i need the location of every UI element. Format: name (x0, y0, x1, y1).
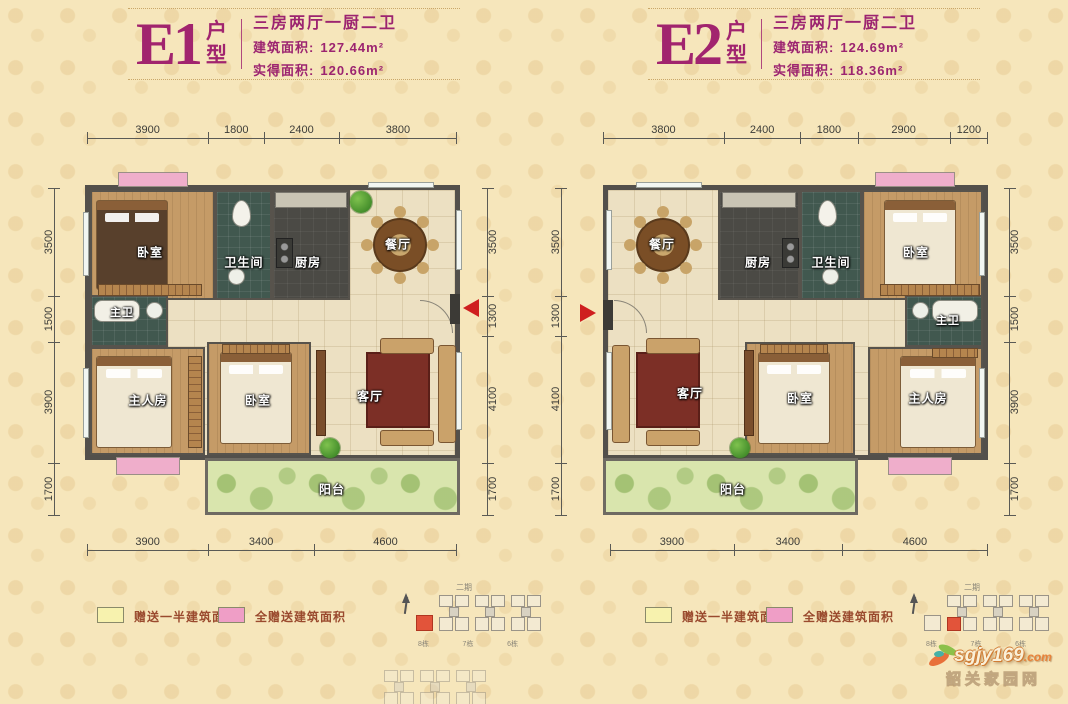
e1-build-area-row: 建筑面积:127.44m² (253, 37, 397, 56)
e2-kitchen-counter-icon (722, 192, 796, 208)
dim-segment: 3800 (603, 122, 724, 146)
dim-value: 4100 (550, 387, 562, 411)
e1-master-sink-icon (146, 302, 163, 319)
site-keyplan-faded (368, 660, 488, 704)
e1-tv-bench-icon (316, 350, 326, 436)
e1-label-dining: 餐厅 (385, 236, 411, 253)
e1-net-area-label: 实得面积: (253, 63, 314, 78)
e2-legend-half-swatch (645, 607, 672, 623)
e2-keyplan-phase: 二期 (964, 582, 980, 593)
e1-build-area-value: 127.44m² (320, 40, 384, 55)
e1-dims-right: 3500 1300 4100 1700 (480, 188, 506, 515)
keyplan-building (475, 595, 505, 635)
e1-bay-window-bottom (116, 457, 180, 475)
e1-dims-left: 3500 1500 3900 1700 (36, 188, 62, 515)
e1-sofa-bottom-icon (380, 430, 434, 446)
dim-segment: 1700 (36, 463, 62, 515)
e1-net-area-row: 实得面积:120.66m² (253, 60, 397, 79)
dim-value: 1500 (43, 307, 55, 331)
e2-master-sink-icon (912, 302, 929, 319)
dim-value: 3900 (135, 124, 159, 136)
e2-label-balcony: 阳台 (720, 481, 746, 498)
dim-segment: 3400 (208, 534, 314, 558)
dim-value: 1800 (224, 124, 248, 136)
e1-label-master-bath: 主卫 (110, 304, 134, 320)
e1-legend-half-swatch (97, 607, 124, 623)
e1-sofa-main-icon (438, 345, 456, 443)
e2-label-bedroom: 卧室 (903, 244, 929, 261)
dim-segment: 1800 (208, 122, 264, 146)
e1-label-living: 客厅 (357, 388, 383, 405)
e2-toilet-icon (818, 200, 837, 227)
dim-value: 1700 (43, 477, 55, 501)
dim-value: 3400 (249, 536, 273, 548)
dim-segment: 3400 (734, 534, 842, 558)
dim-value: 3500 (1009, 230, 1021, 254)
e1-bay-window-top (118, 172, 188, 187)
building-label: 8栋 (418, 639, 429, 649)
dim-value: 1700 (550, 477, 562, 501)
e1-keyplan-phase: 二期 (456, 582, 472, 593)
e2-header: E2 户型 三房两厅一厨二卫 建筑面积:124.69m² 实得面积:118.36… (648, 8, 980, 80)
e1-unit-type-suffix: 户型 (206, 20, 232, 68)
e2-unit-code: E2 (656, 16, 720, 73)
watermark-url: sgjy169.com (954, 645, 1068, 667)
e1-dims-top: 3900 1800 2400 3800 (87, 122, 457, 146)
e2-legend-full-label: 全赠送建筑面积 (803, 608, 894, 625)
e1-entry-arrow-icon (463, 299, 479, 317)
dim-value: 3500 (550, 230, 562, 254)
dim-segment: 1700 (480, 463, 506, 515)
e2-dims-bottom: 3900 3400 4600 (610, 534, 988, 558)
dim-segment: 3900 (87, 122, 208, 146)
e1-label-bedroom2: 卧室 (245, 392, 271, 409)
e2-net-area-row: 实得面积:118.36m² (773, 60, 917, 79)
e2-window-bedroom (979, 212, 985, 276)
dim-segment: 3900 (36, 342, 62, 462)
e2-dims-left: 3500 1300 4100 1700 (543, 188, 569, 515)
dim-value: 4600 (903, 536, 927, 548)
e1-label-master: 主人房 (128, 392, 167, 409)
building-label: 6栋 (507, 639, 518, 649)
keyplan-unit (924, 615, 941, 631)
e1-legend-full-label: 全赠送建筑面积 (255, 608, 346, 625)
keyplan-building (384, 670, 414, 704)
e2-dims-right: 3500 1500 3900 1700 (1002, 188, 1028, 515)
e2-label-bathroom: 卫生间 (811, 254, 850, 271)
floorplan-poster: E1 户型 三房两厅一厨二卫 建筑面积:127.44m² 实得面积:120.66… (0, 0, 1068, 704)
keyplan-building (420, 670, 450, 704)
dim-value: 1300 (487, 304, 499, 328)
e2-header-divider (761, 19, 762, 69)
e2-sofa-bottom-icon (646, 430, 700, 446)
e2-wardrobe-bedroom-icon (880, 284, 980, 296)
e2-window-dining (636, 182, 702, 188)
e2-balcony-plant-icon (730, 438, 750, 458)
dim-segment: 4600 (314, 534, 457, 558)
e2-net-area-value: 118.36m² (840, 63, 903, 78)
e2-layout-desc: 三房两厅一厨二卫 (773, 9, 917, 33)
e2-window-dining-west (606, 210, 612, 270)
e2-label-dining: 餐厅 (649, 236, 675, 253)
e2-label-bedroom2: 卧室 (787, 390, 813, 407)
dim-segment: 4600 (842, 534, 988, 558)
e2-keyplan-highlight-unit (947, 617, 961, 631)
dim-value: 2400 (289, 124, 313, 136)
e2-bay-window-bottom (888, 457, 952, 475)
e1-label-bedroom: 卧室 (137, 244, 163, 261)
watermark-site-name: 韶关家园网 (946, 668, 1068, 689)
e2-keyplan-buildings (924, 595, 1049, 635)
dim-value: 3500 (43, 230, 55, 254)
e1-header-info: 三房两厅一厨二卫 建筑面积:127.44m² 实得面积:120.66m² (253, 9, 397, 79)
dim-value: 1500 (1009, 307, 1021, 331)
e1-dims-bottom: 3900 3400 4600 (87, 534, 457, 558)
e2-dims-top: 3800 2400 1800 2900 1200 (603, 122, 988, 146)
e1-header-divider (241, 19, 242, 69)
e2-header-info: 三房两厅一厨二卫 建筑面积:124.69m² 实得面积:118.36m² (773, 9, 917, 79)
dim-segment: 3500 (1002, 188, 1028, 296)
e1-sofa-top-icon (380, 338, 434, 354)
e2-build-area-label: 建筑面积: (773, 40, 834, 55)
e2-label-living: 客厅 (677, 385, 703, 402)
dim-segment: 2400 (264, 122, 339, 146)
e1-unit-code: E1 (136, 16, 200, 73)
e1-entry-door (450, 294, 460, 324)
e2-build-area-value: 124.69m² (840, 40, 904, 55)
e2-sofa-top-icon (646, 338, 700, 354)
dim-value: 2900 (891, 124, 915, 136)
dim-value: 1700 (487, 477, 499, 501)
dim-value: 1700 (1009, 477, 1021, 501)
e1-header: E1 户型 三房两厅一厨二卫 建筑面积:127.44m² 实得面积:120.66… (128, 8, 460, 80)
e2-legend-full-swatch (766, 607, 793, 623)
e1-balcony-plant-icon (320, 438, 340, 458)
e2-net-area-label: 实得面积: (773, 63, 834, 78)
dim-segment: 1800 (800, 122, 857, 146)
e2-sofa-main-icon (612, 345, 630, 443)
e1-legend-full-swatch (218, 607, 245, 623)
dim-segment: 1200 (950, 122, 988, 146)
e1-build-area-label: 建筑面积: (253, 40, 314, 55)
dim-value: 3500 (487, 230, 499, 254)
e2-label-master: 主人房 (908, 390, 947, 407)
e2-sink-icon (822, 268, 839, 285)
e1-layout-desc: 三房两厅一厨二卫 (253, 9, 397, 33)
keyplan-building (456, 670, 486, 704)
e1-sink-icon (228, 268, 245, 285)
dim-value: 1200 (957, 124, 981, 136)
dim-value: 1300 (550, 304, 562, 328)
e1-window-master (83, 368, 89, 438)
e1-stove-icon (276, 238, 293, 268)
e1-keyplan-buildings (416, 595, 541, 635)
e1-keyplan: 二期 8栋 7栋 6栋 (400, 585, 520, 649)
keyplan-building (983, 595, 1013, 635)
e2-wardrobe-bedroom2-icon (760, 344, 828, 354)
e1-toilet-icon (232, 200, 251, 227)
e1-label-balcony: 阳台 (319, 481, 345, 498)
dim-value: 3800 (386, 124, 410, 136)
e1-kitchen-counter-icon (275, 192, 347, 208)
dim-value: 2400 (750, 124, 774, 136)
e2-label-master-bath: 主卫 (936, 312, 960, 328)
e1-window-bedroom (83, 212, 89, 276)
e2-stove-icon (782, 238, 799, 268)
north-compass-icon (398, 589, 412, 617)
e2-tv-bench-icon (744, 350, 754, 436)
dim-segment: 3900 (1002, 342, 1028, 462)
watermark-tld: .com (1024, 650, 1052, 664)
dim-segment: 1500 (36, 296, 62, 342)
e2-entry-arrow-icon (580, 304, 596, 322)
dim-segment: 3900 (610, 534, 734, 558)
dim-segment: 4100 (543, 336, 569, 462)
dim-segment: 1500 (1002, 296, 1028, 342)
dim-segment: 1700 (1002, 463, 1028, 515)
e1-label-bathroom: 卫生间 (224, 254, 263, 271)
e1-wardrobe-bedroom2-icon (222, 344, 290, 354)
e1-wardrobe-bedroom-icon (98, 284, 202, 296)
e1-plant-icon (350, 191, 372, 213)
e2-keyplan: 二期 8栋 7栋 6栋 (908, 585, 1028, 649)
dim-value: 4100 (487, 387, 499, 411)
e1-wardrobe-master-icon (188, 356, 202, 448)
e1-window-dining (368, 182, 434, 188)
dim-segment: 3900 (87, 534, 208, 558)
dim-segment: 3500 (543, 188, 569, 296)
dim-value: 3900 (660, 536, 684, 548)
e2-unit-type-suffix: 户型 (726, 20, 752, 68)
dim-segment: 3500 (36, 188, 62, 296)
dim-segment: 4100 (480, 336, 506, 462)
e1-window-living (456, 352, 462, 430)
e2-bay-window-top (875, 172, 955, 187)
building-label: 7栋 (463, 639, 474, 649)
dim-value: 3900 (135, 536, 159, 548)
e2-wardrobe-master-icon (932, 348, 978, 358)
dim-segment: 3800 (339, 122, 457, 146)
dim-segment: 3500 (480, 188, 506, 296)
dim-segment: 1300 (480, 296, 506, 336)
e1-label-kitchen: 厨房 (295, 254, 321, 271)
e2-window-master (979, 368, 985, 438)
e2-build-area-row: 建筑面积:124.69m² (773, 37, 917, 56)
dim-value: 1800 (817, 124, 841, 136)
e2-entry-door (603, 300, 613, 330)
watermark-brand: sgjy169 (954, 645, 1024, 666)
dim-segment: 2400 (724, 122, 800, 146)
dim-value: 3400 (776, 536, 800, 548)
dim-value: 4600 (373, 536, 397, 548)
keyplan-building (1019, 595, 1049, 635)
keyplan-building (511, 595, 541, 635)
dim-segment: 2900 (858, 122, 950, 146)
e1-net-area-value: 120.66m² (320, 63, 384, 78)
faded-keyplan-buildings (384, 670, 486, 704)
dim-segment: 1700 (543, 463, 569, 515)
dim-segment: 1300 (543, 296, 569, 336)
dim-value: 3900 (43, 390, 55, 414)
e1-keyplan-highlight-unit (416, 615, 433, 631)
keyplan-building (947, 595, 977, 635)
e2-label-kitchen: 厨房 (745, 254, 771, 271)
dim-value: 3900 (1009, 390, 1021, 414)
north-compass-icon (906, 589, 920, 617)
watermark: sgjy169.com 韶关家园网 (928, 645, 1068, 689)
e1-keyplan-building-labels: 8栋 7栋 6栋 (418, 639, 518, 649)
e1-window-dining-east (456, 210, 462, 270)
dim-value: 3800 (651, 124, 675, 136)
keyplan-building (439, 595, 469, 635)
